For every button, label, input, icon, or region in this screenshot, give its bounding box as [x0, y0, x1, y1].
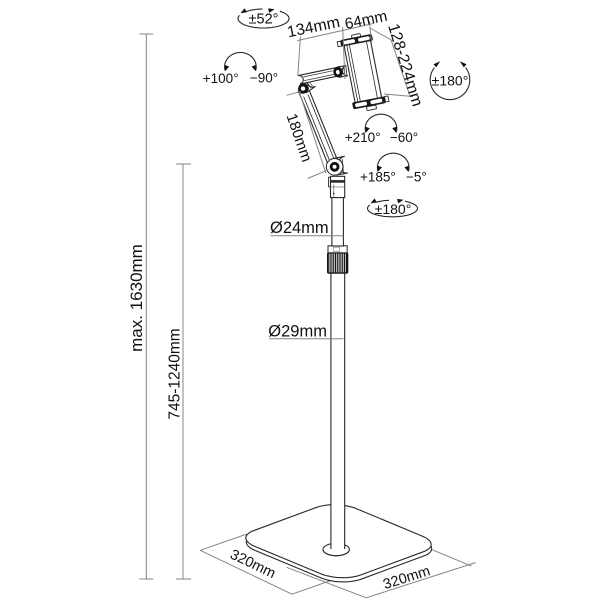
svg-text:±180°: ±180°	[375, 201, 412, 217]
svg-text:±52°: ±52°	[249, 12, 279, 28]
svg-text:+100°: +100°	[203, 71, 239, 86]
svg-text:±180°: ±180°	[432, 73, 469, 89]
svg-text:+185°: +185°	[360, 170, 396, 185]
svg-text:−5°: −5°	[406, 170, 427, 185]
svg-text:−90°: −90°	[250, 71, 278, 86]
svg-text:Ø24mm: Ø24mm	[270, 219, 329, 237]
svg-text:Ø29mm: Ø29mm	[268, 323, 327, 341]
svg-text:−60°: −60°	[390, 130, 418, 145]
svg-text:745-1240mm: 745-1240mm	[167, 328, 184, 419]
svg-text:+210°: +210°	[345, 130, 381, 145]
svg-text:max. 1630mm: max. 1630mm	[127, 244, 146, 352]
